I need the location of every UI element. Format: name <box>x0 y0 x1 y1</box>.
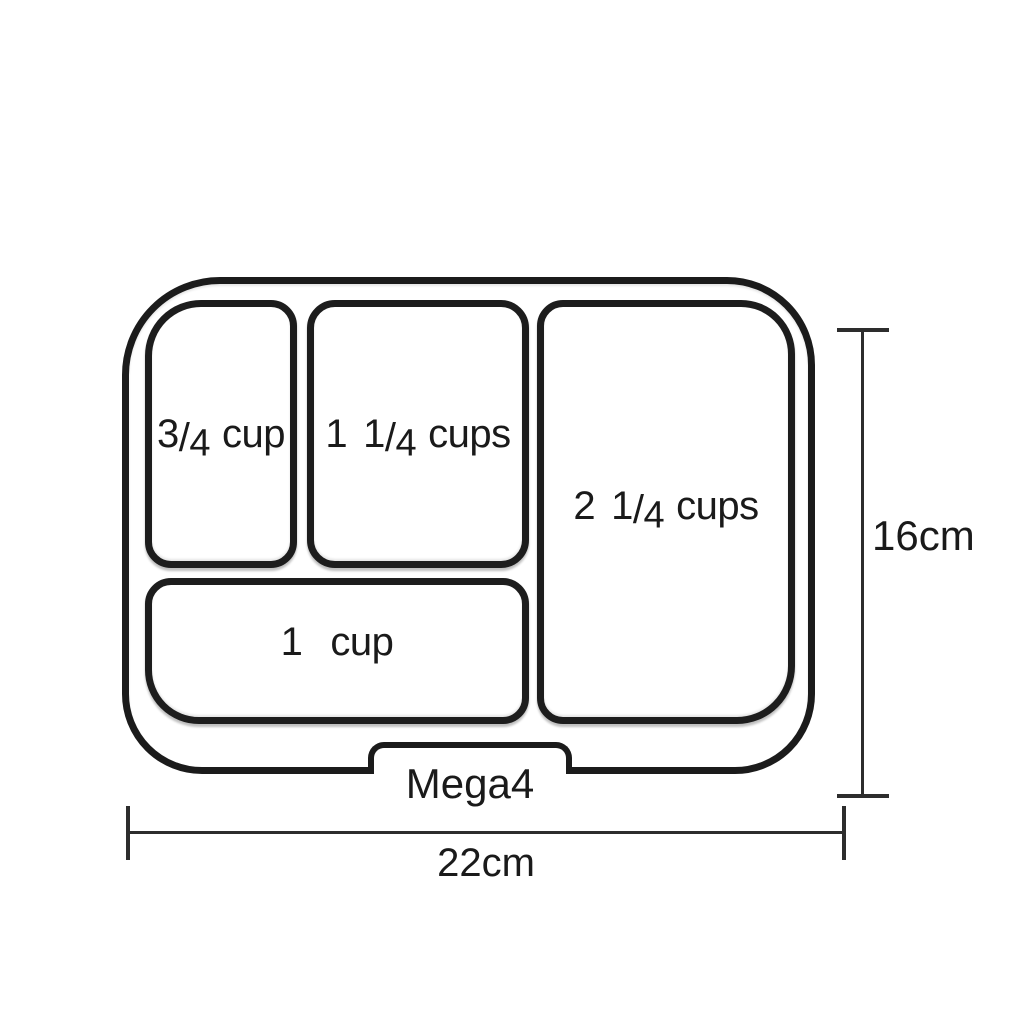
model-name-label: Mega4 <box>368 760 572 808</box>
compartment-top-middle: 1 1 / 4 cups <box>307 300 529 568</box>
compartment-capacity-label: 3 / 4 cup <box>157 412 285 457</box>
capacity-numerator: 3 <box>157 412 179 457</box>
compartment-bottom: 1 cup <box>145 578 529 724</box>
capacity-whole: 1 <box>325 412 347 457</box>
capacity-denominator: 4 <box>189 422 210 465</box>
capacity-numerator: 1 <box>611 484 633 529</box>
width-dimension-label: 22cm <box>127 841 845 886</box>
compartment-capacity-label: 2 1 / 4 cups <box>573 484 758 529</box>
capacity-whole: 2 <box>573 484 595 529</box>
capacity-fraction-slash: / <box>179 416 190 461</box>
height-dimension-line <box>861 330 864 797</box>
height-dimension-bottom-cap <box>837 794 889 798</box>
capacity-unit: cups <box>428 412 511 457</box>
capacity-unit: cups <box>676 484 759 529</box>
capacity-unit: cup <box>330 620 393 665</box>
height-dimension-top-cap <box>837 328 889 332</box>
capacity-unit: cup <box>222 412 285 457</box>
lunchbox-tray-diagram: 3 / 4 cup 1 1 / 4 cups 2 1 / 4 cups 1 <box>0 0 1024 1024</box>
compartment-right: 2 1 / 4 cups <box>537 300 795 724</box>
compartment-capacity-label: 1 cup <box>281 620 394 665</box>
capacity-denominator: 4 <box>395 422 416 465</box>
capacity-numerator: 1 <box>363 412 385 457</box>
capacity-fraction-slash: / <box>633 488 644 533</box>
width-dimension-line <box>127 831 845 834</box>
compartment-capacity-label: 1 1 / 4 cups <box>325 412 510 457</box>
capacity-whole: 1 <box>281 620 303 665</box>
capacity-denominator: 4 <box>643 494 664 537</box>
height-dimension-label: 16cm <box>872 512 975 560</box>
compartment-top-left: 3 / 4 cup <box>145 300 297 568</box>
capacity-fraction-slash: / <box>385 416 396 461</box>
